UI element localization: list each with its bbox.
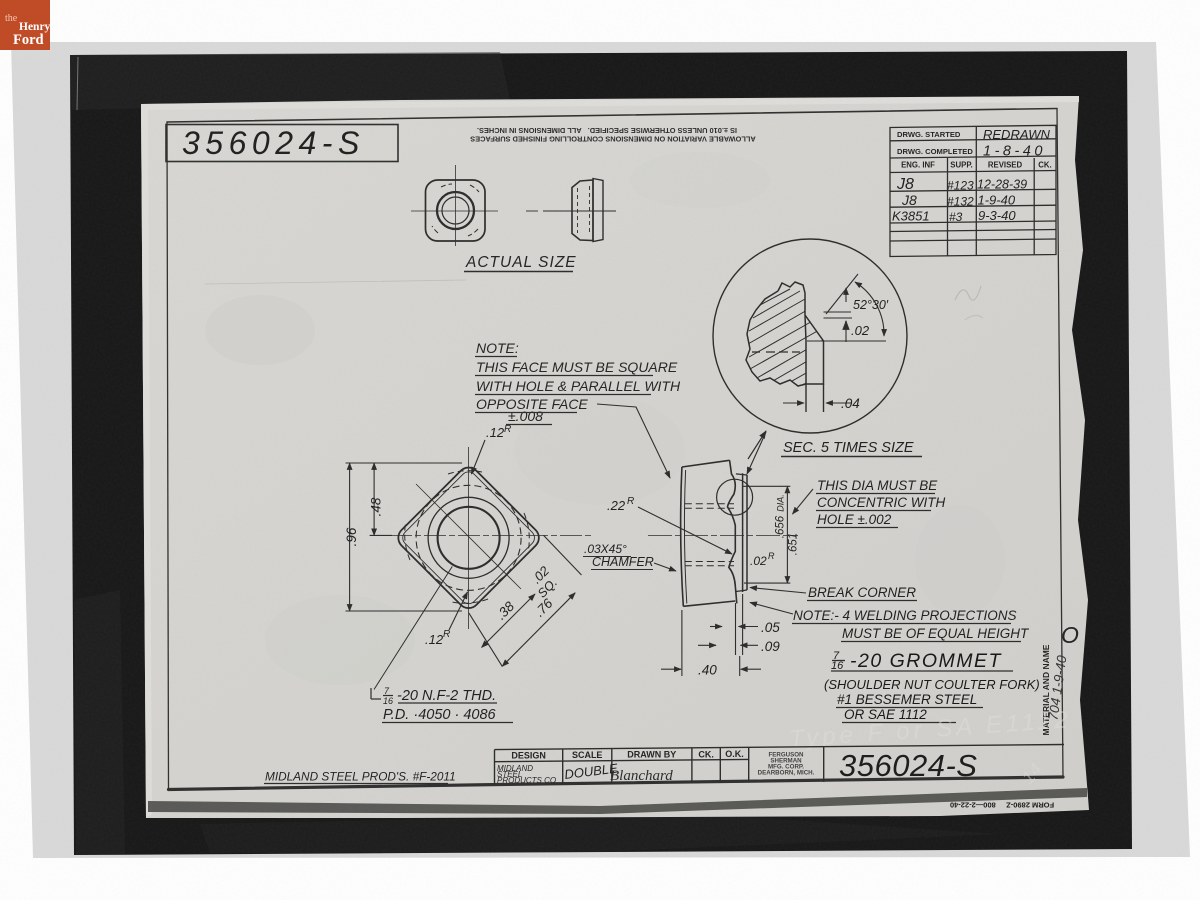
svg-text:FORM 2890-Z 800—2-22-40: FORM 2890-Z 800—2-22-40 <box>950 801 1054 810</box>
